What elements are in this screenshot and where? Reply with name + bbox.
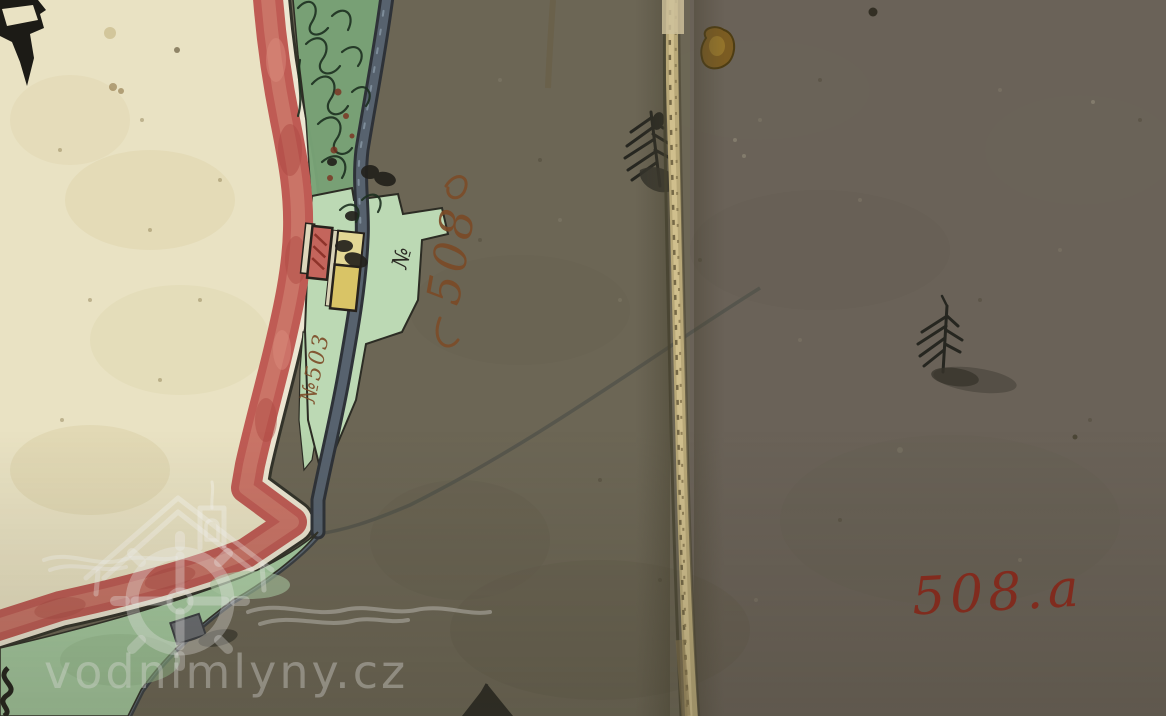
map-scan-viewport[interactable]: № 508 №503 508.a bbox=[0, 0, 1166, 716]
map-canvas: № 508 №503 508.a bbox=[0, 0, 1166, 716]
vignette bbox=[0, 0, 1166, 716]
